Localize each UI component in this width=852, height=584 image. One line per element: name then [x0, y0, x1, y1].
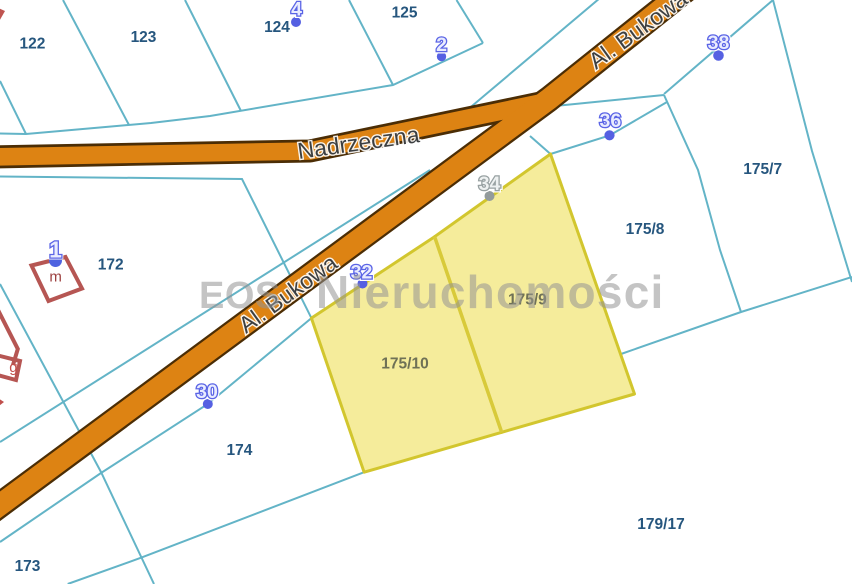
svg-text:2: 2	[436, 34, 447, 56]
svg-text:30: 30	[196, 381, 218, 403]
svg-text:122: 122	[19, 36, 45, 53]
svg-text:174: 174	[226, 442, 252, 459]
svg-text:124: 124	[264, 19, 290, 36]
svg-text:34: 34	[479, 173, 501, 195]
svg-text:175/8: 175/8	[626, 221, 665, 238]
svg-text:EOS: EOS	[199, 275, 281, 317]
svg-text:36: 36	[600, 110, 622, 132]
svg-text:g: g	[9, 359, 17, 376]
svg-text:175/7: 175/7	[743, 161, 782, 178]
svg-text:123: 123	[131, 29, 157, 46]
svg-text:1: 1	[49, 237, 62, 263]
svg-text:125: 125	[392, 5, 418, 22]
svg-text:179/17: 179/17	[637, 516, 684, 533]
svg-text:4: 4	[291, 0, 302, 21]
svg-text:173: 173	[15, 558, 41, 575]
svg-text:172: 172	[98, 257, 124, 274]
svg-text:Nieruchomości: Nieruchomości	[316, 266, 665, 318]
svg-text:m: m	[49, 269, 62, 286]
svg-text:38: 38	[708, 32, 730, 54]
svg-text:175/10: 175/10	[381, 356, 428, 373]
